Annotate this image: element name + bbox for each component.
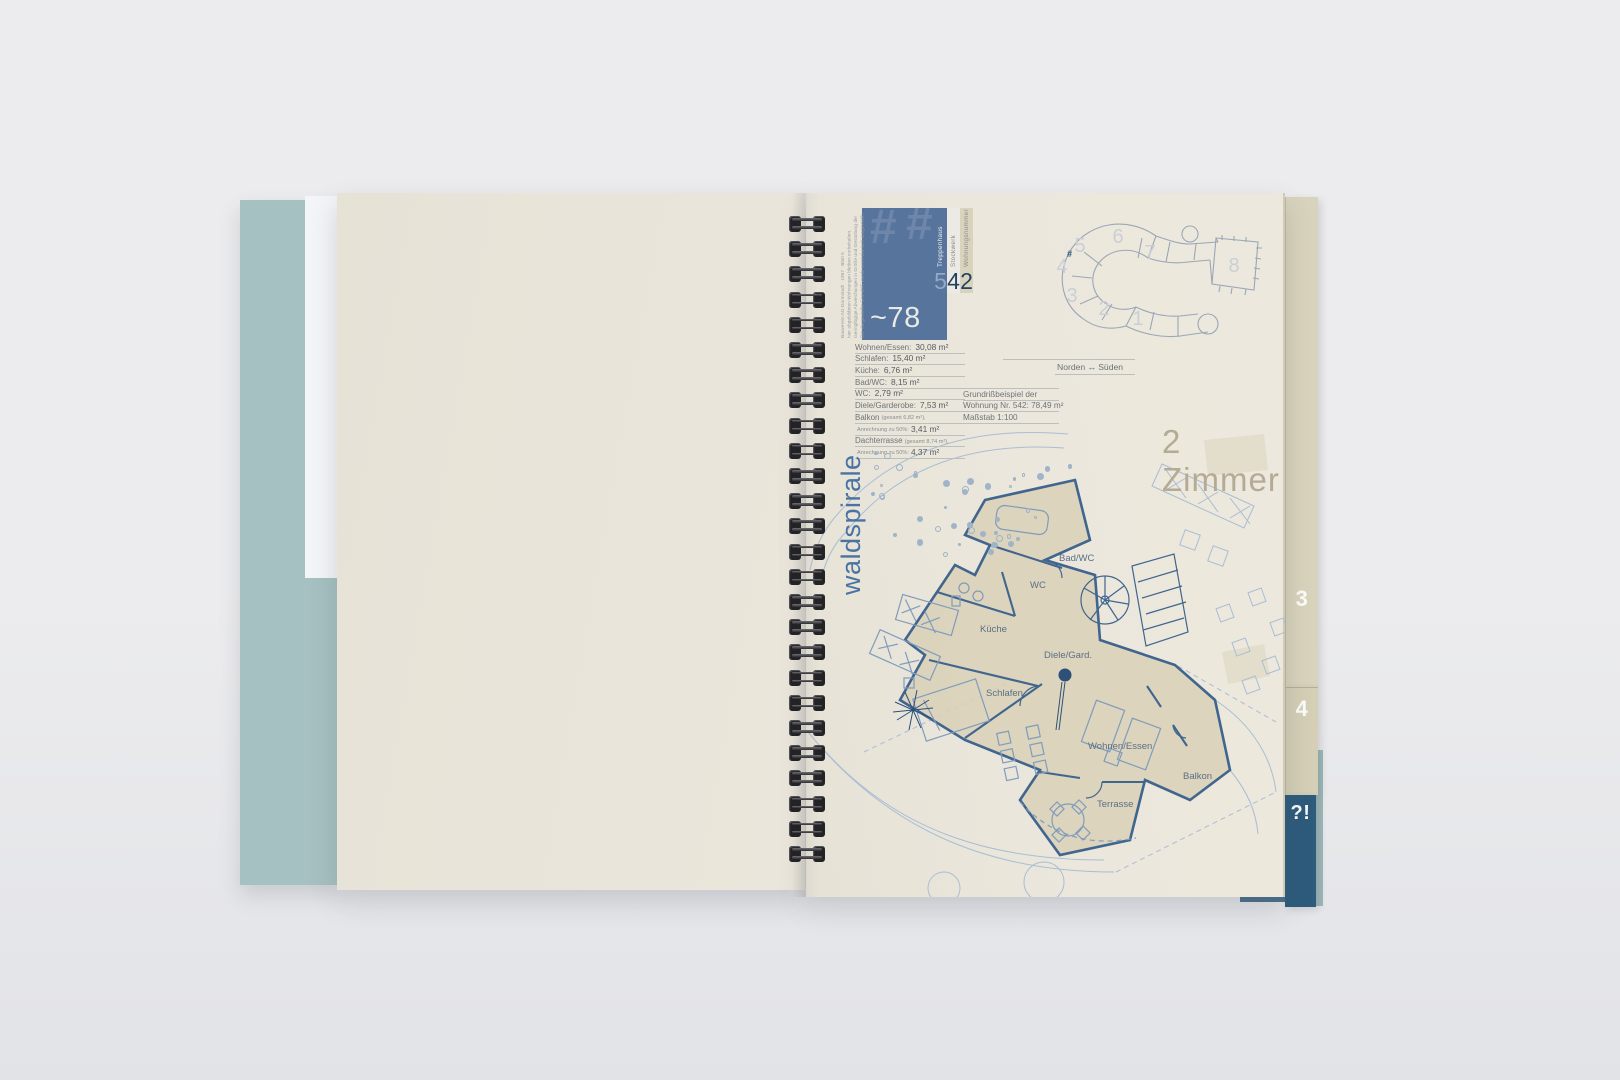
binding-loop <box>786 569 828 586</box>
treppenhaus-label: Treppenhaus <box>937 211 944 267</box>
binding-loop <box>786 796 828 813</box>
room-label-balkon: Balkon <box>1183 771 1212 782</box>
room-area-table: Wohnen/Essen:30,08 m² Schlafen:15,40 m² … <box>855 342 965 459</box>
binding-loop <box>786 392 828 409</box>
example-line: Grundrißbeispiel der <box>963 389 1059 401</box>
floorplan-example-block: Grundrißbeispiel der Wohnung Nr. 542: 78… <box>963 388 1059 424</box>
binding-loop <box>786 518 828 535</box>
table-row: WC:2,79 m² <box>855 389 965 401</box>
site-number-5: 5 <box>1074 235 1085 257</box>
binding-loop <box>786 644 828 661</box>
binding-loop <box>786 670 828 687</box>
column-stockwerk: Stockwerk 4 <box>947 208 960 293</box>
table-row: Schlafen:15,40 m² <box>855 354 965 366</box>
tab-questions-label: ?! <box>1285 802 1316 825</box>
white-inserted-sheet <box>305 196 338 578</box>
apartment-type-label: 2 Zimmer <box>1162 423 1285 499</box>
compass-rule <box>1055 374 1135 375</box>
room-label-terrasse: Terrasse <box>1097 799 1133 810</box>
room-label-bad-wc: Bad/WC <box>1059 553 1094 564</box>
room-label-diele: Diele/Gard. <box>1044 650 1092 661</box>
column-treppenhaus: Treppenhaus 5 <box>934 208 947 293</box>
hash-decor-icon: # <box>906 208 933 251</box>
left-page-blank <box>337 193 805 890</box>
compass-label: Norden↔Süden <box>1057 362 1123 372</box>
stockwerk-label: Stockwerk <box>950 211 957 267</box>
site-number-3: 3 <box>1066 285 1077 307</box>
room-label-kueche: Küche <box>980 624 1007 635</box>
site-number-8: 8 <box>1228 255 1239 277</box>
tab-section-questions[interactable]: ?! <box>1285 795 1316 907</box>
binding-loop <box>786 216 828 233</box>
binding-loop <box>786 846 828 863</box>
room-label-schlafen: Schlafen <box>986 688 1023 699</box>
binding-loop <box>786 594 828 611</box>
spiral-binding <box>786 193 828 897</box>
binding-loop <box>786 367 828 384</box>
wohnungsnummer-label: Wohnungsnummer <box>963 211 970 267</box>
photo-of-open-brochure: 3 4 ?! <box>0 0 1620 1080</box>
tab-4-label: 4 <box>1286 696 1318 722</box>
site-number-4: 4 <box>1056 256 1067 278</box>
binding-loop <box>786 317 828 334</box>
hash-decor-icon: # <box>870 208 897 255</box>
example-line: Wohnung Nr. 542: 78,49 m² <box>963 401 1059 413</box>
table-row: Diele/Garderobe:7,53 m² <box>855 400 965 412</box>
binding-loop <box>786 821 828 838</box>
table-row: Bad/WC:8,15 m² <box>855 377 965 389</box>
table-row: Dachterrasse(gesamt 8,74 m²), <box>855 436 965 448</box>
room-label-wc: WC <box>1030 580 1046 591</box>
binding-loop <box>786 468 828 485</box>
binding-loop <box>786 720 828 737</box>
binding-loop <box>786 292 828 309</box>
site-marker-hash-icon: # <box>1067 249 1072 259</box>
binding-loop <box>786 619 828 636</box>
binding-loop <box>786 443 828 460</box>
room-label-wohnen-essen: Wohnen/Essen <box>1088 741 1152 752</box>
site-number-1: 1 <box>1132 308 1143 330</box>
tab-section-4[interactable]: 4 <box>1285 687 1318 795</box>
stockwerk-number: 4 <box>947 270 960 293</box>
binding-loop <box>786 342 828 359</box>
brand-waldspirale: waldspirale <box>836 461 867 595</box>
column-wohnungsnummer: Wohnungsnummer 2 <box>960 208 973 293</box>
site-number-2: 2 <box>1098 298 1109 320</box>
site-number-6: 6 <box>1112 226 1123 248</box>
binding-loop <box>786 493 828 510</box>
right-page: Bad/WC WC Küche Diele/Gard. Schlafen Woh… <box>806 193 1285 897</box>
double-arrow-icon: ↔ <box>1085 362 1098 372</box>
wohnungsnummer-number: 2 <box>960 270 973 293</box>
table-row: Anrechnung zu 50%:3,41 m² <box>855 424 965 436</box>
example-line: Maßstab 1:100 <box>963 412 1059 424</box>
building-site-plan: 1 2 3 4 5 6 7 8 # <box>1050 200 1265 360</box>
tab-section-3[interactable]: 3 <box>1285 197 1318 687</box>
table-row: Wohnen/Essen:30,08 m² <box>855 342 965 354</box>
disclaimer-text: Bauverein AG Darmstadt · 1997 · Blatt 5 … <box>841 208 867 338</box>
binding-loop <box>786 544 828 561</box>
binding-loop <box>786 418 828 435</box>
binding-loop <box>786 266 828 283</box>
tab-3-label: 3 <box>1286 586 1318 612</box>
site-number-7: 7 <box>1144 242 1155 264</box>
table-row: Balkon(gesamt 6,82 m²), <box>855 412 965 424</box>
binding-loop <box>786 695 828 712</box>
approx-area-label: ~78 m2 <box>870 302 947 340</box>
binding-loop <box>786 745 828 762</box>
table-row: Anrechnung zu 50%:4,37 m² <box>855 447 965 459</box>
binding-loop <box>786 770 828 787</box>
treppenhaus-number: 5 <box>934 270 947 293</box>
table-row: Küche:6,76 m² <box>855 365 965 377</box>
binding-loop <box>786 241 828 258</box>
